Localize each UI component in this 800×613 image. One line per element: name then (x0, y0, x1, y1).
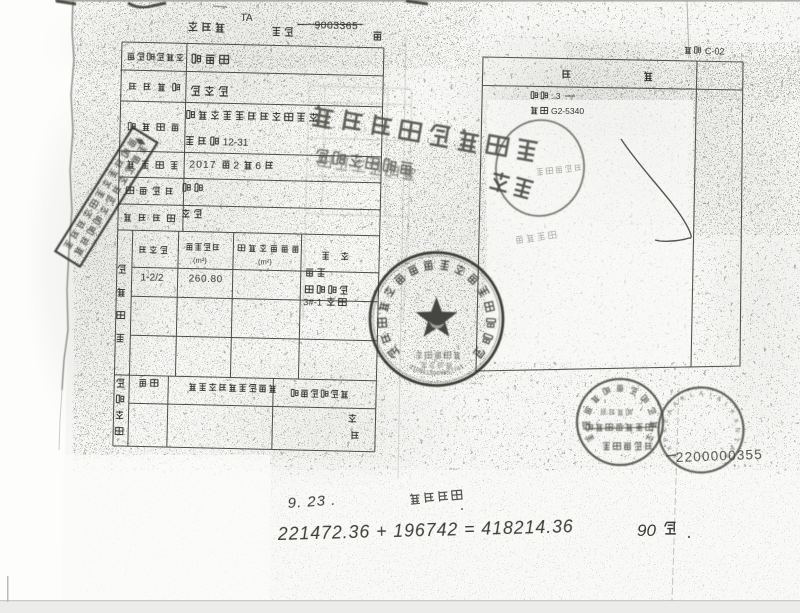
svg-text:1-2/2: 1-2/2 (141, 272, 164, 284)
svg-text:9. 23 .: 9. 23 . (287, 492, 337, 512)
svg-text:2200000355: 2200000355 (676, 447, 764, 465)
svg-text:12-31: 12-31 (223, 137, 249, 149)
svg-text:: 3: : 3 (551, 91, 561, 101)
svg-text:2: 2 (233, 160, 239, 172)
svg-text:9003365: 9003365 (314, 19, 358, 32)
svg-text:(m²): (m²) (193, 256, 207, 265)
svg-text:(m²): (m²) (258, 257, 272, 266)
svg-text:3#-1: 3#-1 (303, 297, 322, 308)
svg-text:90: 90 (637, 521, 656, 540)
svg-text:2017: 2017 (189, 159, 217, 172)
svg-text:260.80: 260.80 (189, 274, 223, 286)
svg-text:6: 6 (255, 160, 261, 172)
svg-text:C-02: C-02 (705, 46, 725, 56)
svg-text:TA: TA (240, 13, 253, 24)
svg-text:N: N (734, 428, 741, 432)
svg-text:G2-5340: G2-5340 (551, 106, 584, 116)
